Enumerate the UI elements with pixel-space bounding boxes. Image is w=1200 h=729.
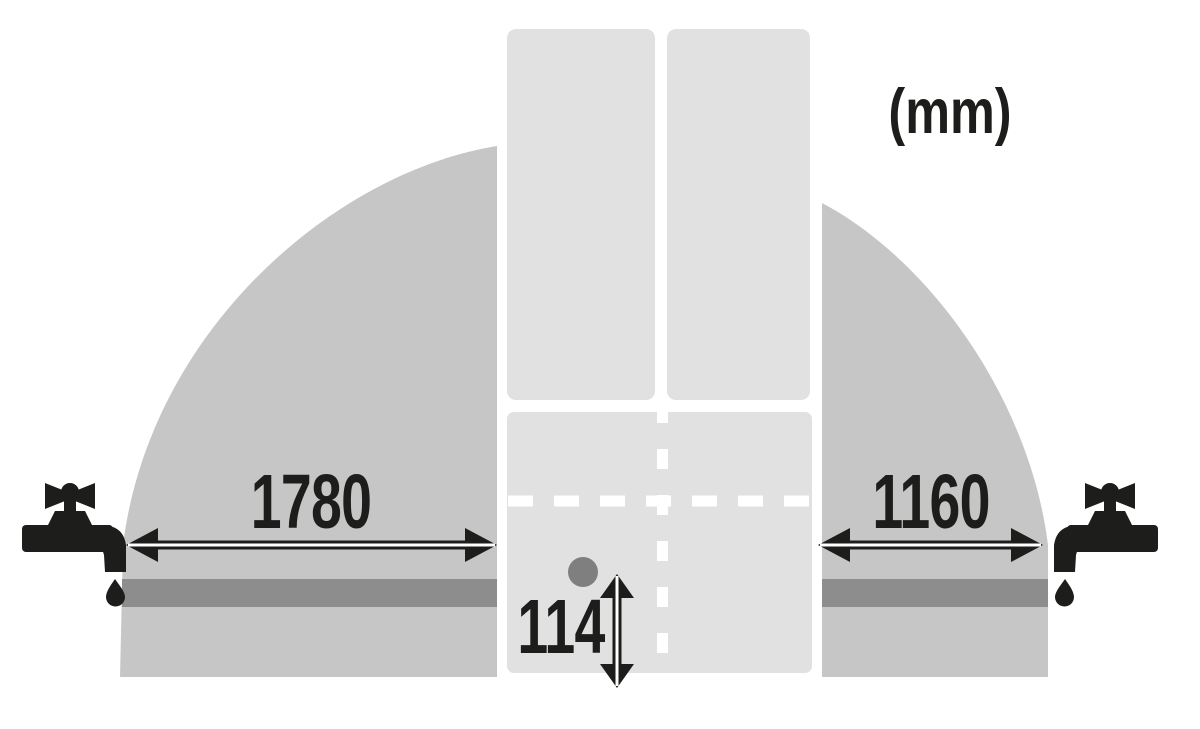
right-hose-bar xyxy=(822,579,1048,607)
water-tap-left-icon xyxy=(22,483,126,607)
water-tap-right-icon xyxy=(1054,483,1158,607)
bottom-clearance-label: 114 xyxy=(517,584,605,670)
appliance-door-right-panel xyxy=(667,29,810,400)
left-distance-label: 1780 xyxy=(251,459,371,545)
right-distance-label: 1160 xyxy=(872,459,989,545)
installation-diagram: 1780 1160 114 (mm) xyxy=(0,0,1200,729)
unit-label: (mm) xyxy=(888,77,1011,148)
appliance-door-left-panel xyxy=(507,29,655,400)
diagram-canvas: 1780 1160 114 (mm) xyxy=(0,0,1200,729)
hose-connection-dot xyxy=(568,557,598,587)
left-hose-bar xyxy=(122,579,497,607)
